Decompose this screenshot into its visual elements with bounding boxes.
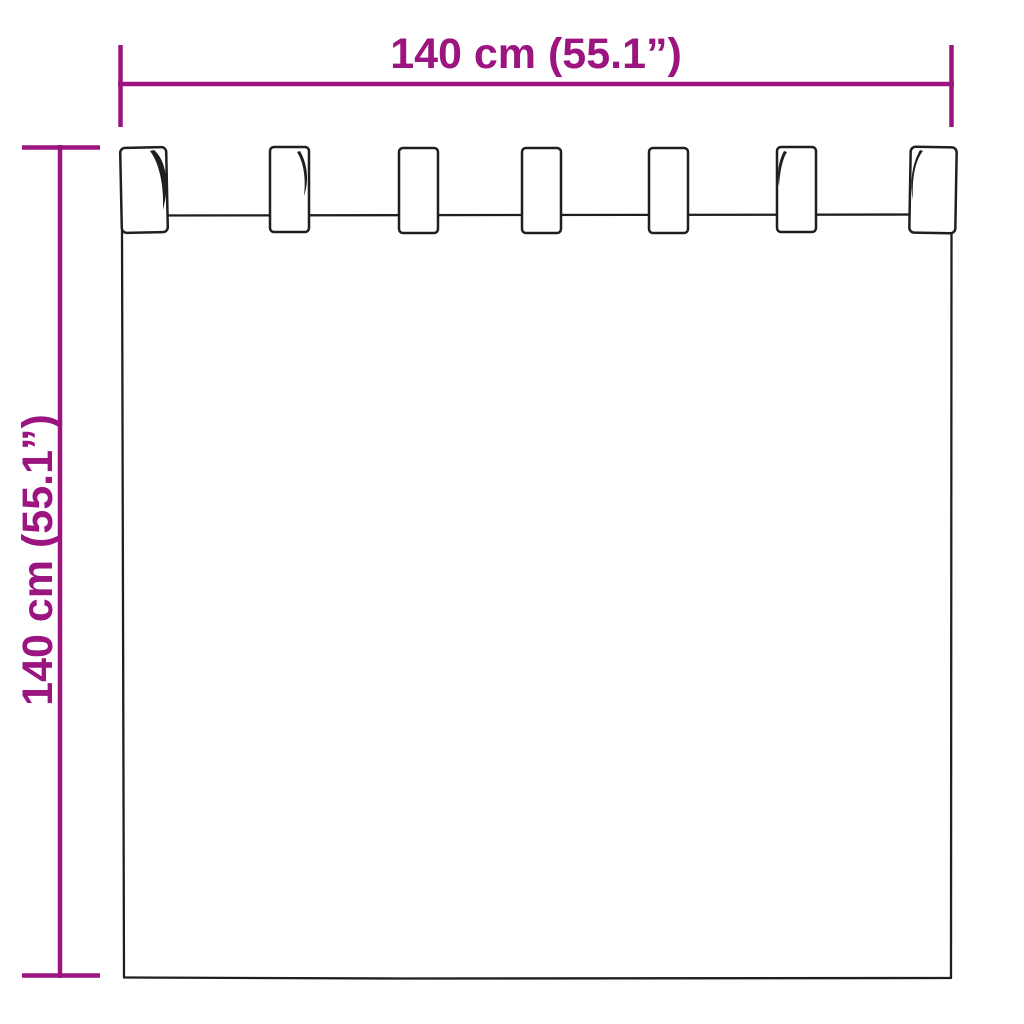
curtain-line-art: [0, 0, 1024, 1024]
curtain-drawing: [120, 147, 957, 979]
curtain-panel: [122, 230, 952, 979]
dimension-diagram: 140 cm (55.1”) 140 cm (55.1”): [0, 0, 1024, 1024]
curtain-tab: [399, 148, 438, 233]
curtain-tab: [649, 148, 688, 233]
height-dimension-label: 140 cm (55.1”): [14, 360, 62, 760]
curtain-tab: [522, 148, 561, 233]
width-dimension-label: 140 cm (55.1”): [120, 30, 952, 78]
